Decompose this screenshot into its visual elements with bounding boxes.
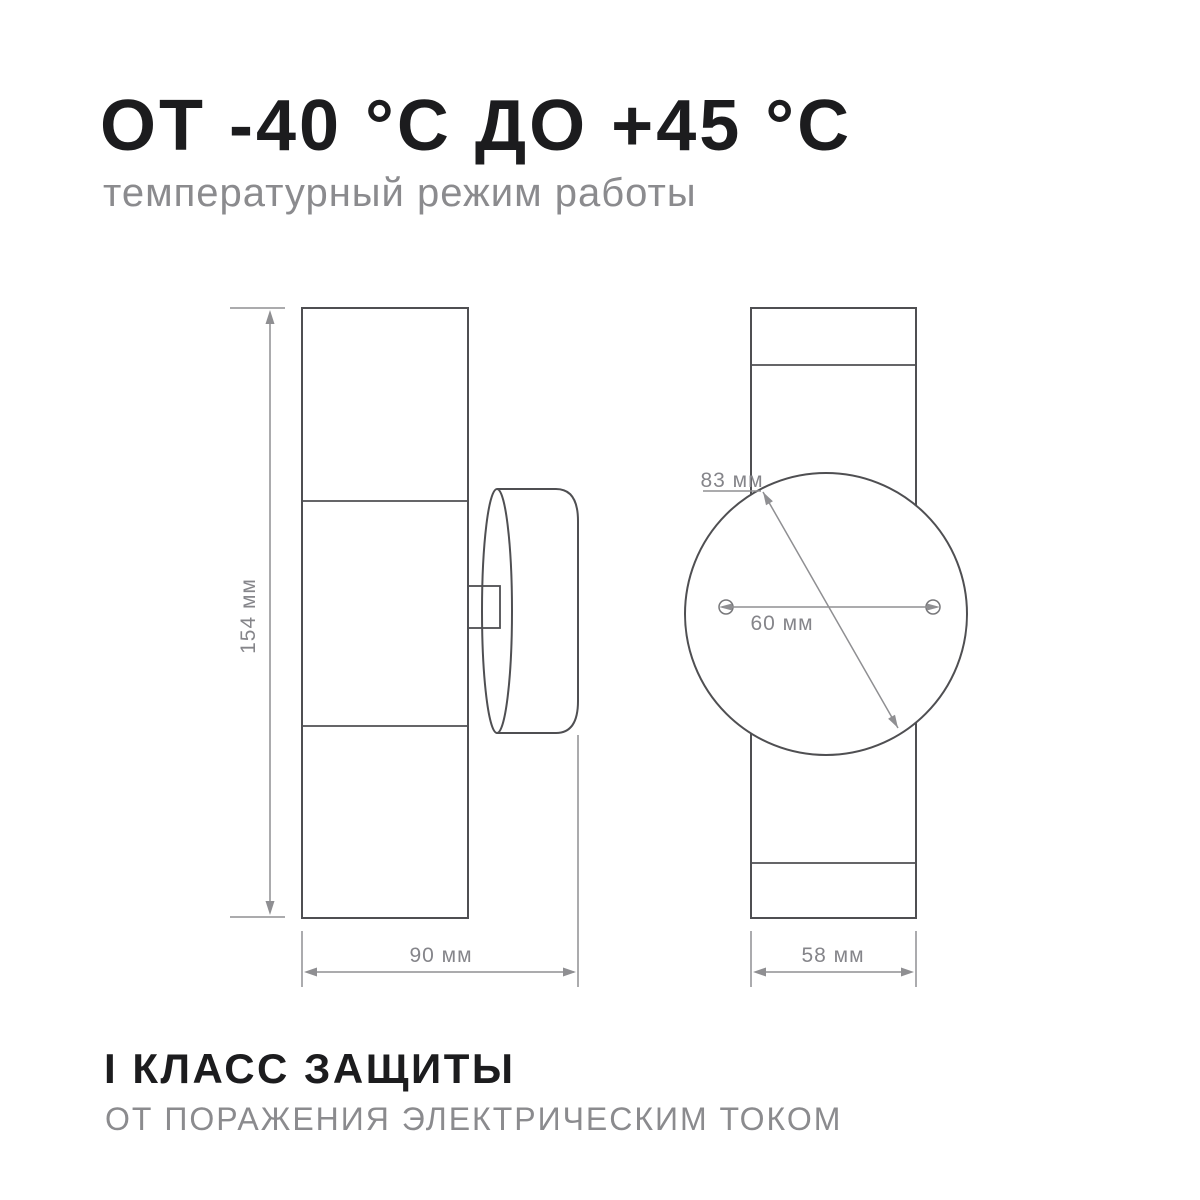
arrow-left-icon [753, 968, 766, 977]
arrow-right-icon [901, 968, 914, 977]
rear-view-drawing: 60 мм 83 мм 58 мм [685, 308, 967, 987]
height-dimension-label: 154 мм [237, 578, 260, 654]
mounting-bracket-tab [468, 586, 500, 628]
protection-class-subtitle: ОТ ПОРАЖЕНИЯ ЭЛЕКТРИЧЕСКИМ ТОКОМ [105, 1102, 842, 1137]
hole-spacing-label: 60 мм [750, 612, 813, 635]
protection-class-title: I КЛАСС ЗАЩИТЫ [104, 1048, 842, 1090]
mounting-plate-rim [482, 489, 512, 733]
plate-diameter-label: 83 мм [700, 469, 763, 492]
arrow-left-icon [304, 968, 317, 977]
arrow-up-icon [266, 310, 275, 324]
width-dimension-label: 90 мм [409, 944, 472, 967]
arrow-right-icon [563, 968, 576, 977]
dimension-width-rear: 58 мм [751, 931, 916, 987]
protection-class-block: I КЛАСС ЗАЩИТЫ ОТ ПОРАЖЕНИЯ ЭЛЕКТРИЧЕСКИ… [104, 1048, 842, 1137]
dimension-width-side: 90 мм [302, 735, 578, 987]
mounting-plate-body [497, 489, 578, 733]
arrow-down-icon [266, 901, 275, 915]
width-dimension-label-rear: 58 мм [801, 944, 864, 967]
side-view-drawing: 154 мм 90 мм [230, 308, 578, 987]
dimension-height: 154 мм [230, 308, 285, 917]
product-spec-image: ОТ -40 °С ДО +45 °С температурный режим … [0, 0, 1200, 1200]
technical-drawing-canvas: 154 мм 90 мм [0, 0, 1200, 1200]
lamp-body-outline [302, 308, 468, 918]
